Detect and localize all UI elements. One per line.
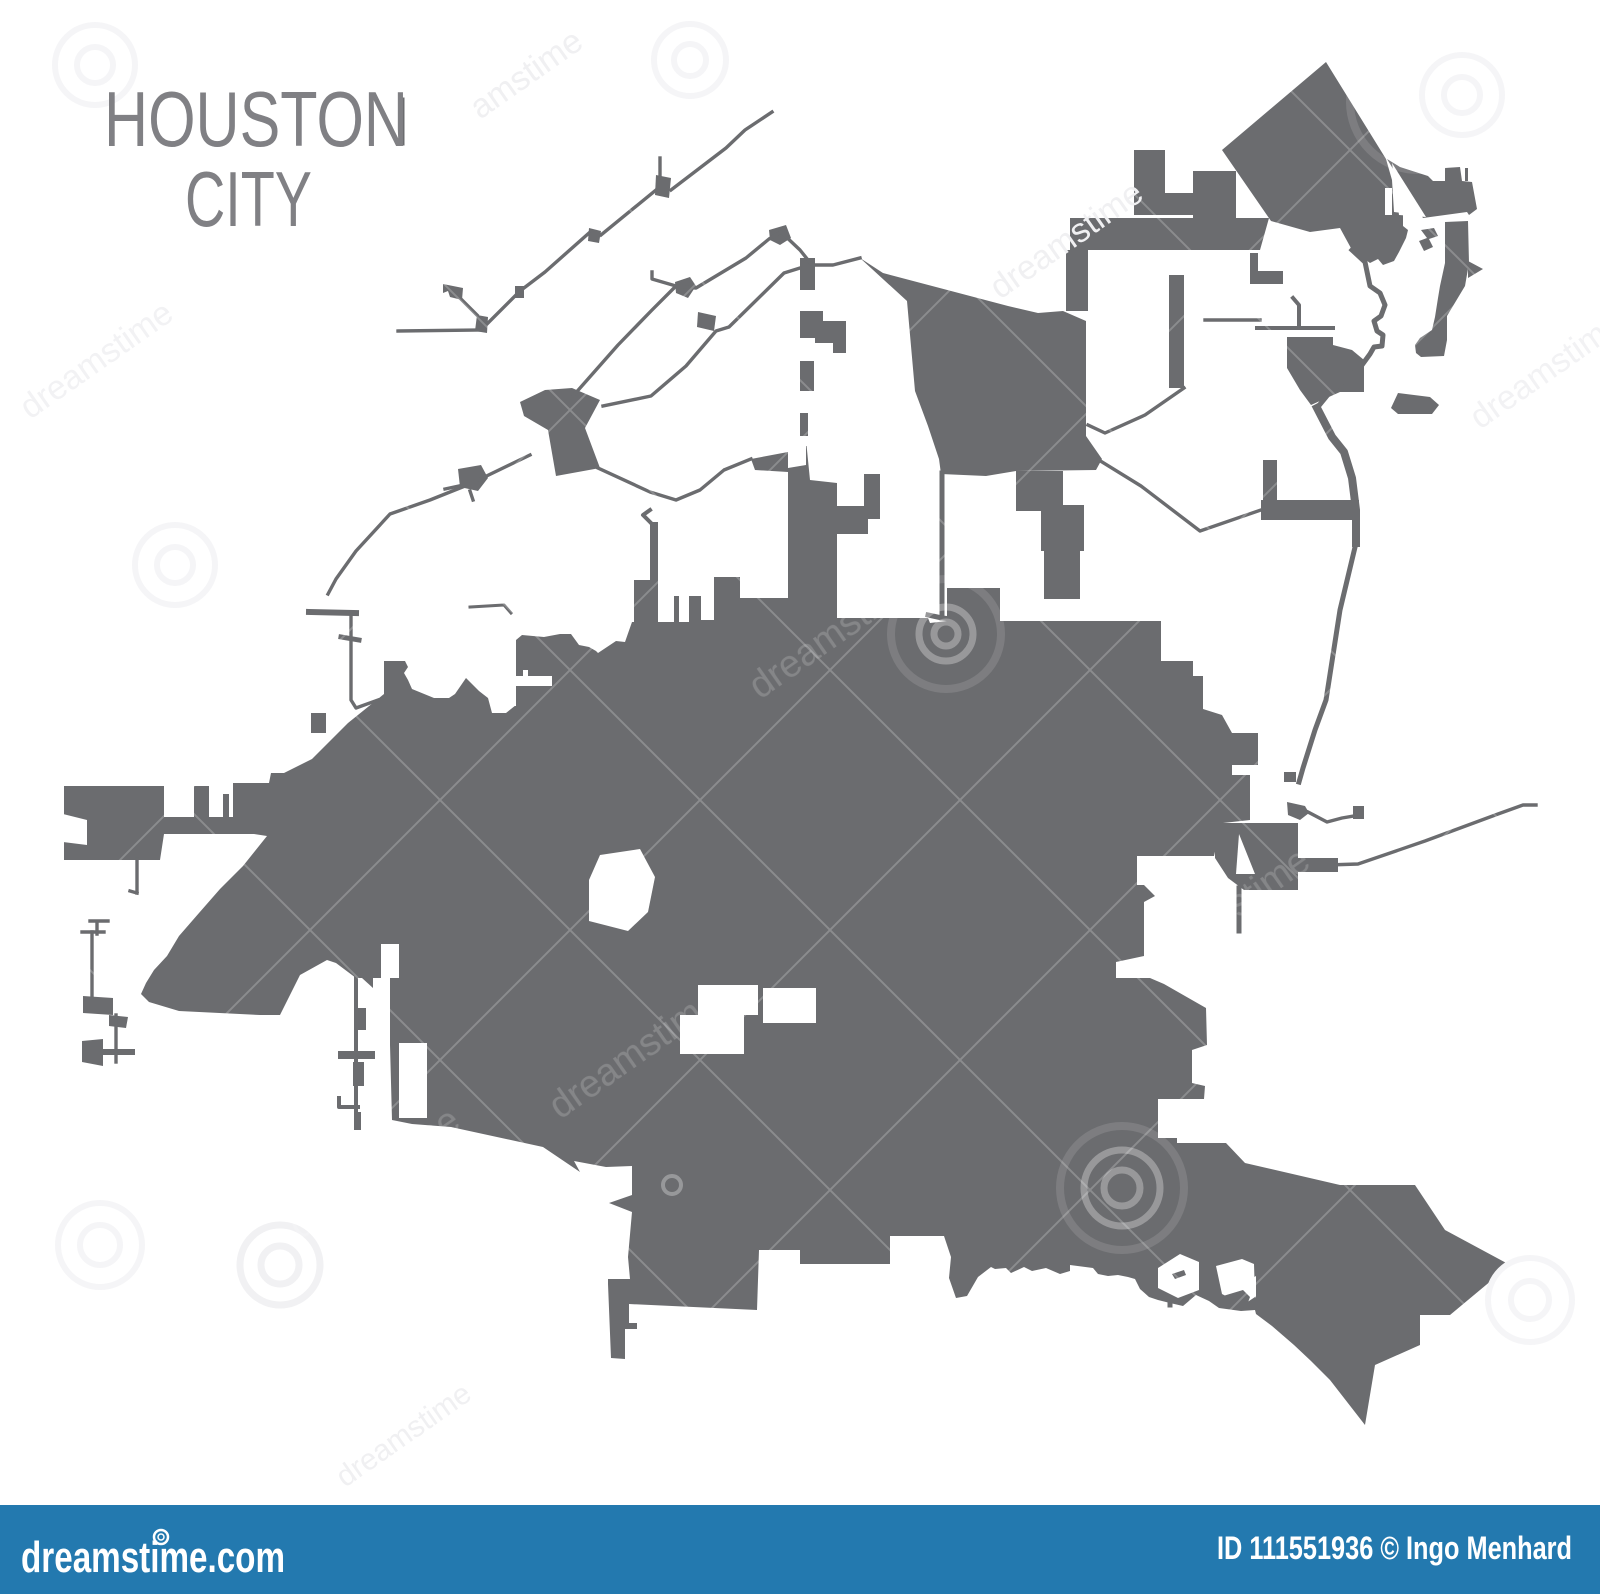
svg-text:ID 111551936 © Ingo Menhard: ID 111551936 © Ingo Menhard xyxy=(1217,1530,1572,1566)
svg-text:dreamstime.com: dreamstime.com xyxy=(21,1533,285,1582)
svg-text:HOUSTON: HOUSTON xyxy=(104,75,408,163)
svg-text:CITY: CITY xyxy=(185,155,312,243)
